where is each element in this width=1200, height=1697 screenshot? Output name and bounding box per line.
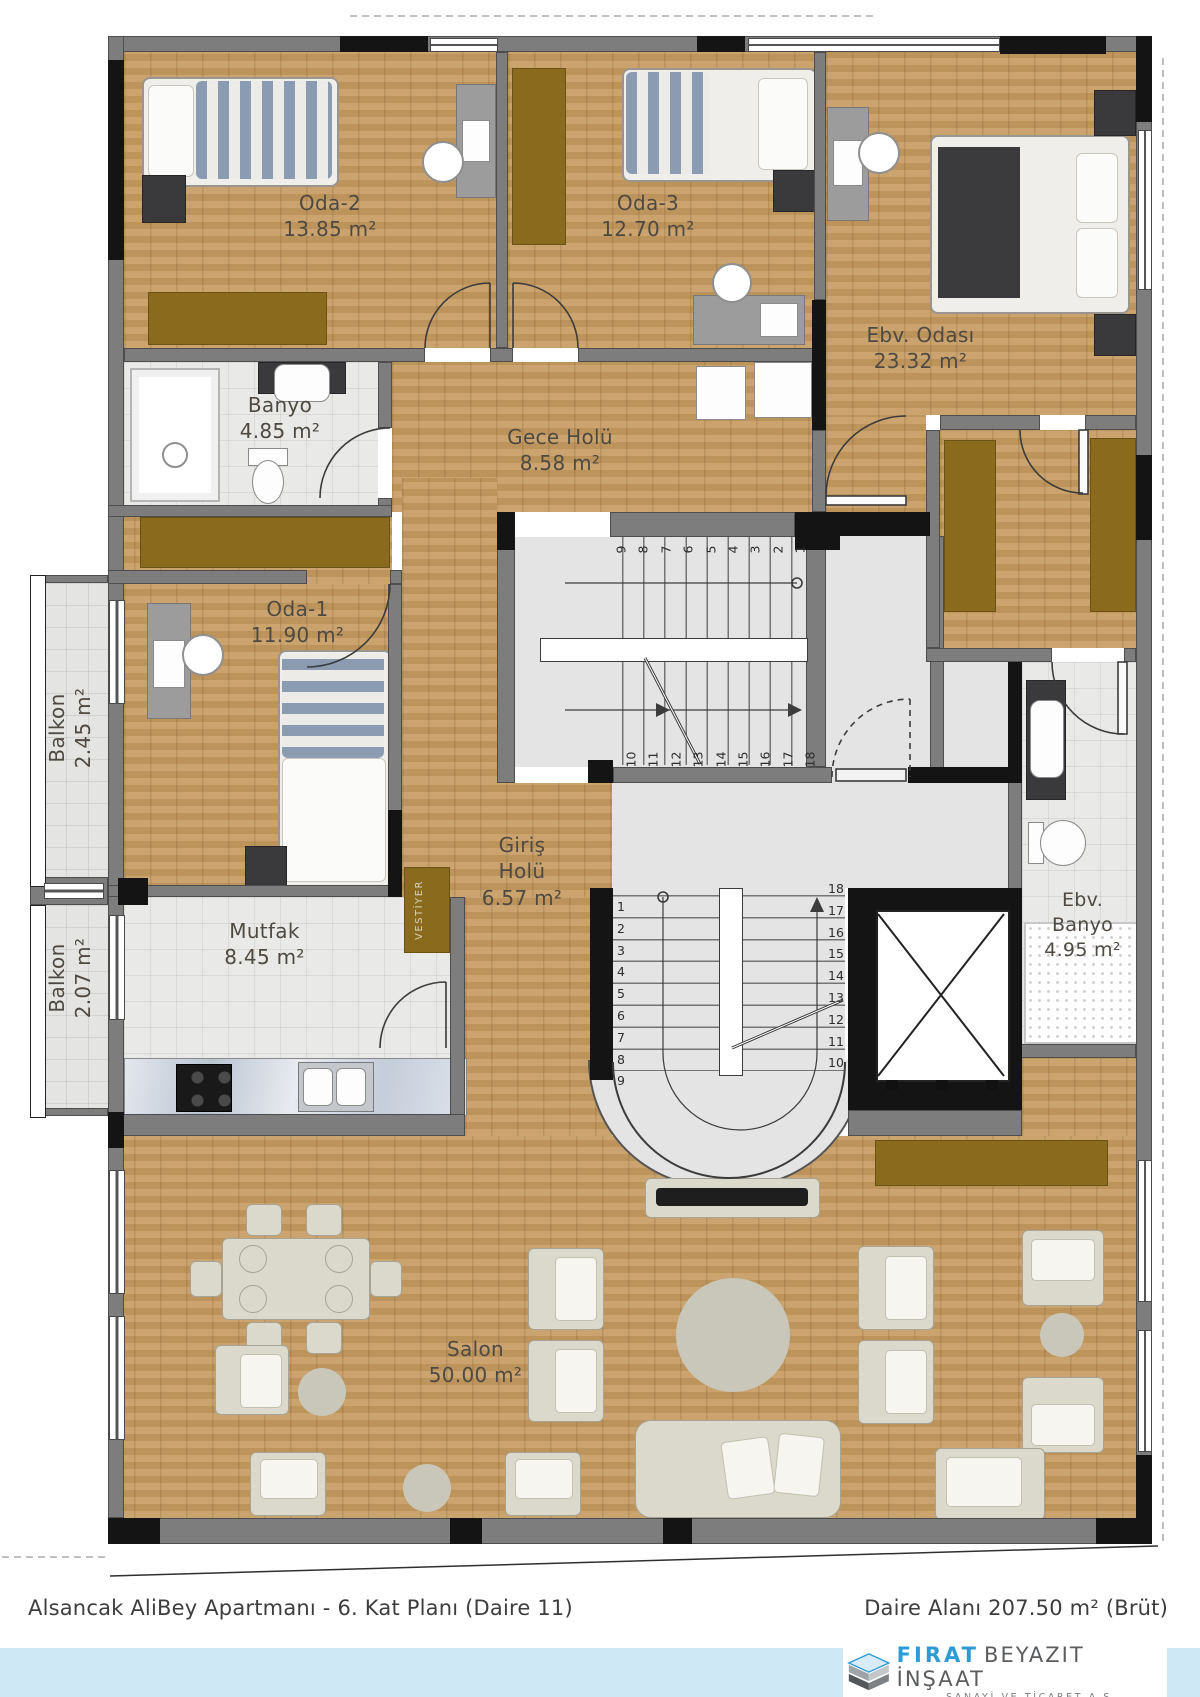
room-label-giris-holu: Giriş Holü 6.57 m² [472,832,572,911]
room-name: Oda-3 [558,190,738,216]
stair-step-number: 2 [617,921,625,936]
stair-step-number: 10 [623,752,638,768]
stair-step-number: 4 [725,546,740,554]
company-logo: FIRAT BEYAZIT İNŞAAT SANAYİ VE TİCARET A… [843,1648,1167,1697]
room-name: Salon [378,1336,573,1362]
stair-step-number: 6 [681,546,696,554]
room-area: 13.85 m² [240,216,420,242]
stair-step-number: 5 [617,986,625,1001]
room-label-balkon-2: Balkon 2.07 m² [44,903,100,1053]
stair-step-number: 1 [617,899,625,914]
room-name: Giriş Holü [472,832,572,885]
stair-step-number: 12 [668,752,683,768]
room-label-oda3: Oda-3 12.70 m² [558,190,738,243]
stair-step-number: 2 [770,546,785,554]
stair-step-number: 1 [793,546,808,554]
stair-step-number: 11 [828,1034,844,1049]
room-area: 50.00 m² [378,1362,573,1388]
stair-step-number: 18 [803,752,818,768]
stair-step-number: 13 [828,990,844,1005]
room-name: Mutfak [172,918,357,944]
footer-band-right [1167,1648,1200,1697]
room-name: Oda-1 [200,596,395,622]
room-area: 6.57 m² [472,885,572,911]
room-label-mutfak: Mutfak 8.45 m² [172,918,357,971]
room-label-gece-holu: Gece Holü 8.58 m² [470,424,650,477]
stair-step-number: 9 [613,546,628,554]
stair-step-number: 3 [617,943,625,958]
stair-step-number: 9 [617,1073,625,1088]
footer-band-left [0,1648,843,1697]
room-label-salon: Salon 50.00 m² [378,1336,573,1389]
room-name: Oda-2 [240,190,420,216]
room-name: Banyo [190,392,370,418]
room-label-oda2: Oda-2 13.85 m² [240,190,420,243]
room-area: 12.70 m² [558,216,738,242]
stair-step-number: 14 [828,968,844,983]
logo-brand: FIRAT [897,1643,979,1667]
room-area: 8.45 m² [172,944,357,970]
plan-title: Alsancak AliBey Apartmanı - 6. Kat Planı… [28,1596,573,1620]
room-area: 2.07 m² [70,903,96,1053]
logo-text: FIRAT BEYAZIT İNŞAAT SANAYİ VE TİCARET A… [897,1643,1167,1697]
room-area: 8.58 m² [470,450,650,476]
floor-plan-page: Oda-2 13.85 m² Oda-3 12.70 m² Ebv. Odası… [0,0,1200,1697]
stair-step-number: 17 [828,903,844,918]
stair-step-number: 17 [780,752,795,768]
room-label-ebv-banyo: Ebv. Banyo 4.95 m² [1030,888,1135,963]
stair-step-number: 7 [658,546,673,554]
stair-step-number: 5 [703,546,718,554]
stair-step-number: 15 [828,946,844,961]
room-label-banyo: Banyo 4.85 m² [190,392,370,445]
stair-step-number: 6 [617,1008,625,1023]
room-label-oda1: Oda-1 11.90 m² [200,596,395,649]
room-area: 4.85 m² [190,418,370,444]
stair-step-number: 11 [646,752,661,768]
stair-step-number: 7 [617,1030,625,1045]
stair-step-number: 16 [758,752,773,768]
stair-step-number: 8 [636,546,651,554]
vestiyer-label: VESTİYER [414,860,440,960]
room-name: Ebv. Odası [818,322,1023,348]
room-label-ebv-odasi: Ebv. Odası 23.32 m² [818,322,1023,375]
room-name: Balkon [44,903,70,1053]
stair-step-number: 14 [713,752,728,768]
plan-area-total: Daire Alanı 207.50 m² (Brüt) [864,1596,1168,1620]
stair-step-number: 4 [617,964,625,979]
room-name: Gece Holü [470,424,650,450]
room-name: Ebv. Banyo [1030,888,1135,938]
stair-step-number: 15 [735,752,750,768]
vestiyer-text: VESTİYER [414,880,425,940]
stair-step-number: 13 [691,752,706,768]
stair-step-number: 8 [617,1052,625,1067]
stair-step-number: 10 [828,1055,844,1070]
room-area: 4.95 m² [1030,938,1135,963]
stair-step-number: 16 [828,925,844,940]
stair-step-number: 18 [828,881,844,896]
stair-step-number: 3 [748,546,763,554]
stair-step-number: 12 [828,1012,844,1027]
logo-cube-icon [847,1651,891,1695]
room-name: Balkon [44,653,70,803]
logo-subtitle: SANAYİ VE TİCARET A.Ş. [897,1692,1167,1697]
room-label-balkon-1: Balkon 2.45 m² [44,653,100,803]
room-area: 11.90 m² [200,622,395,648]
room-area: 23.32 m² [818,348,1023,374]
room-area: 2.45 m² [70,653,96,803]
